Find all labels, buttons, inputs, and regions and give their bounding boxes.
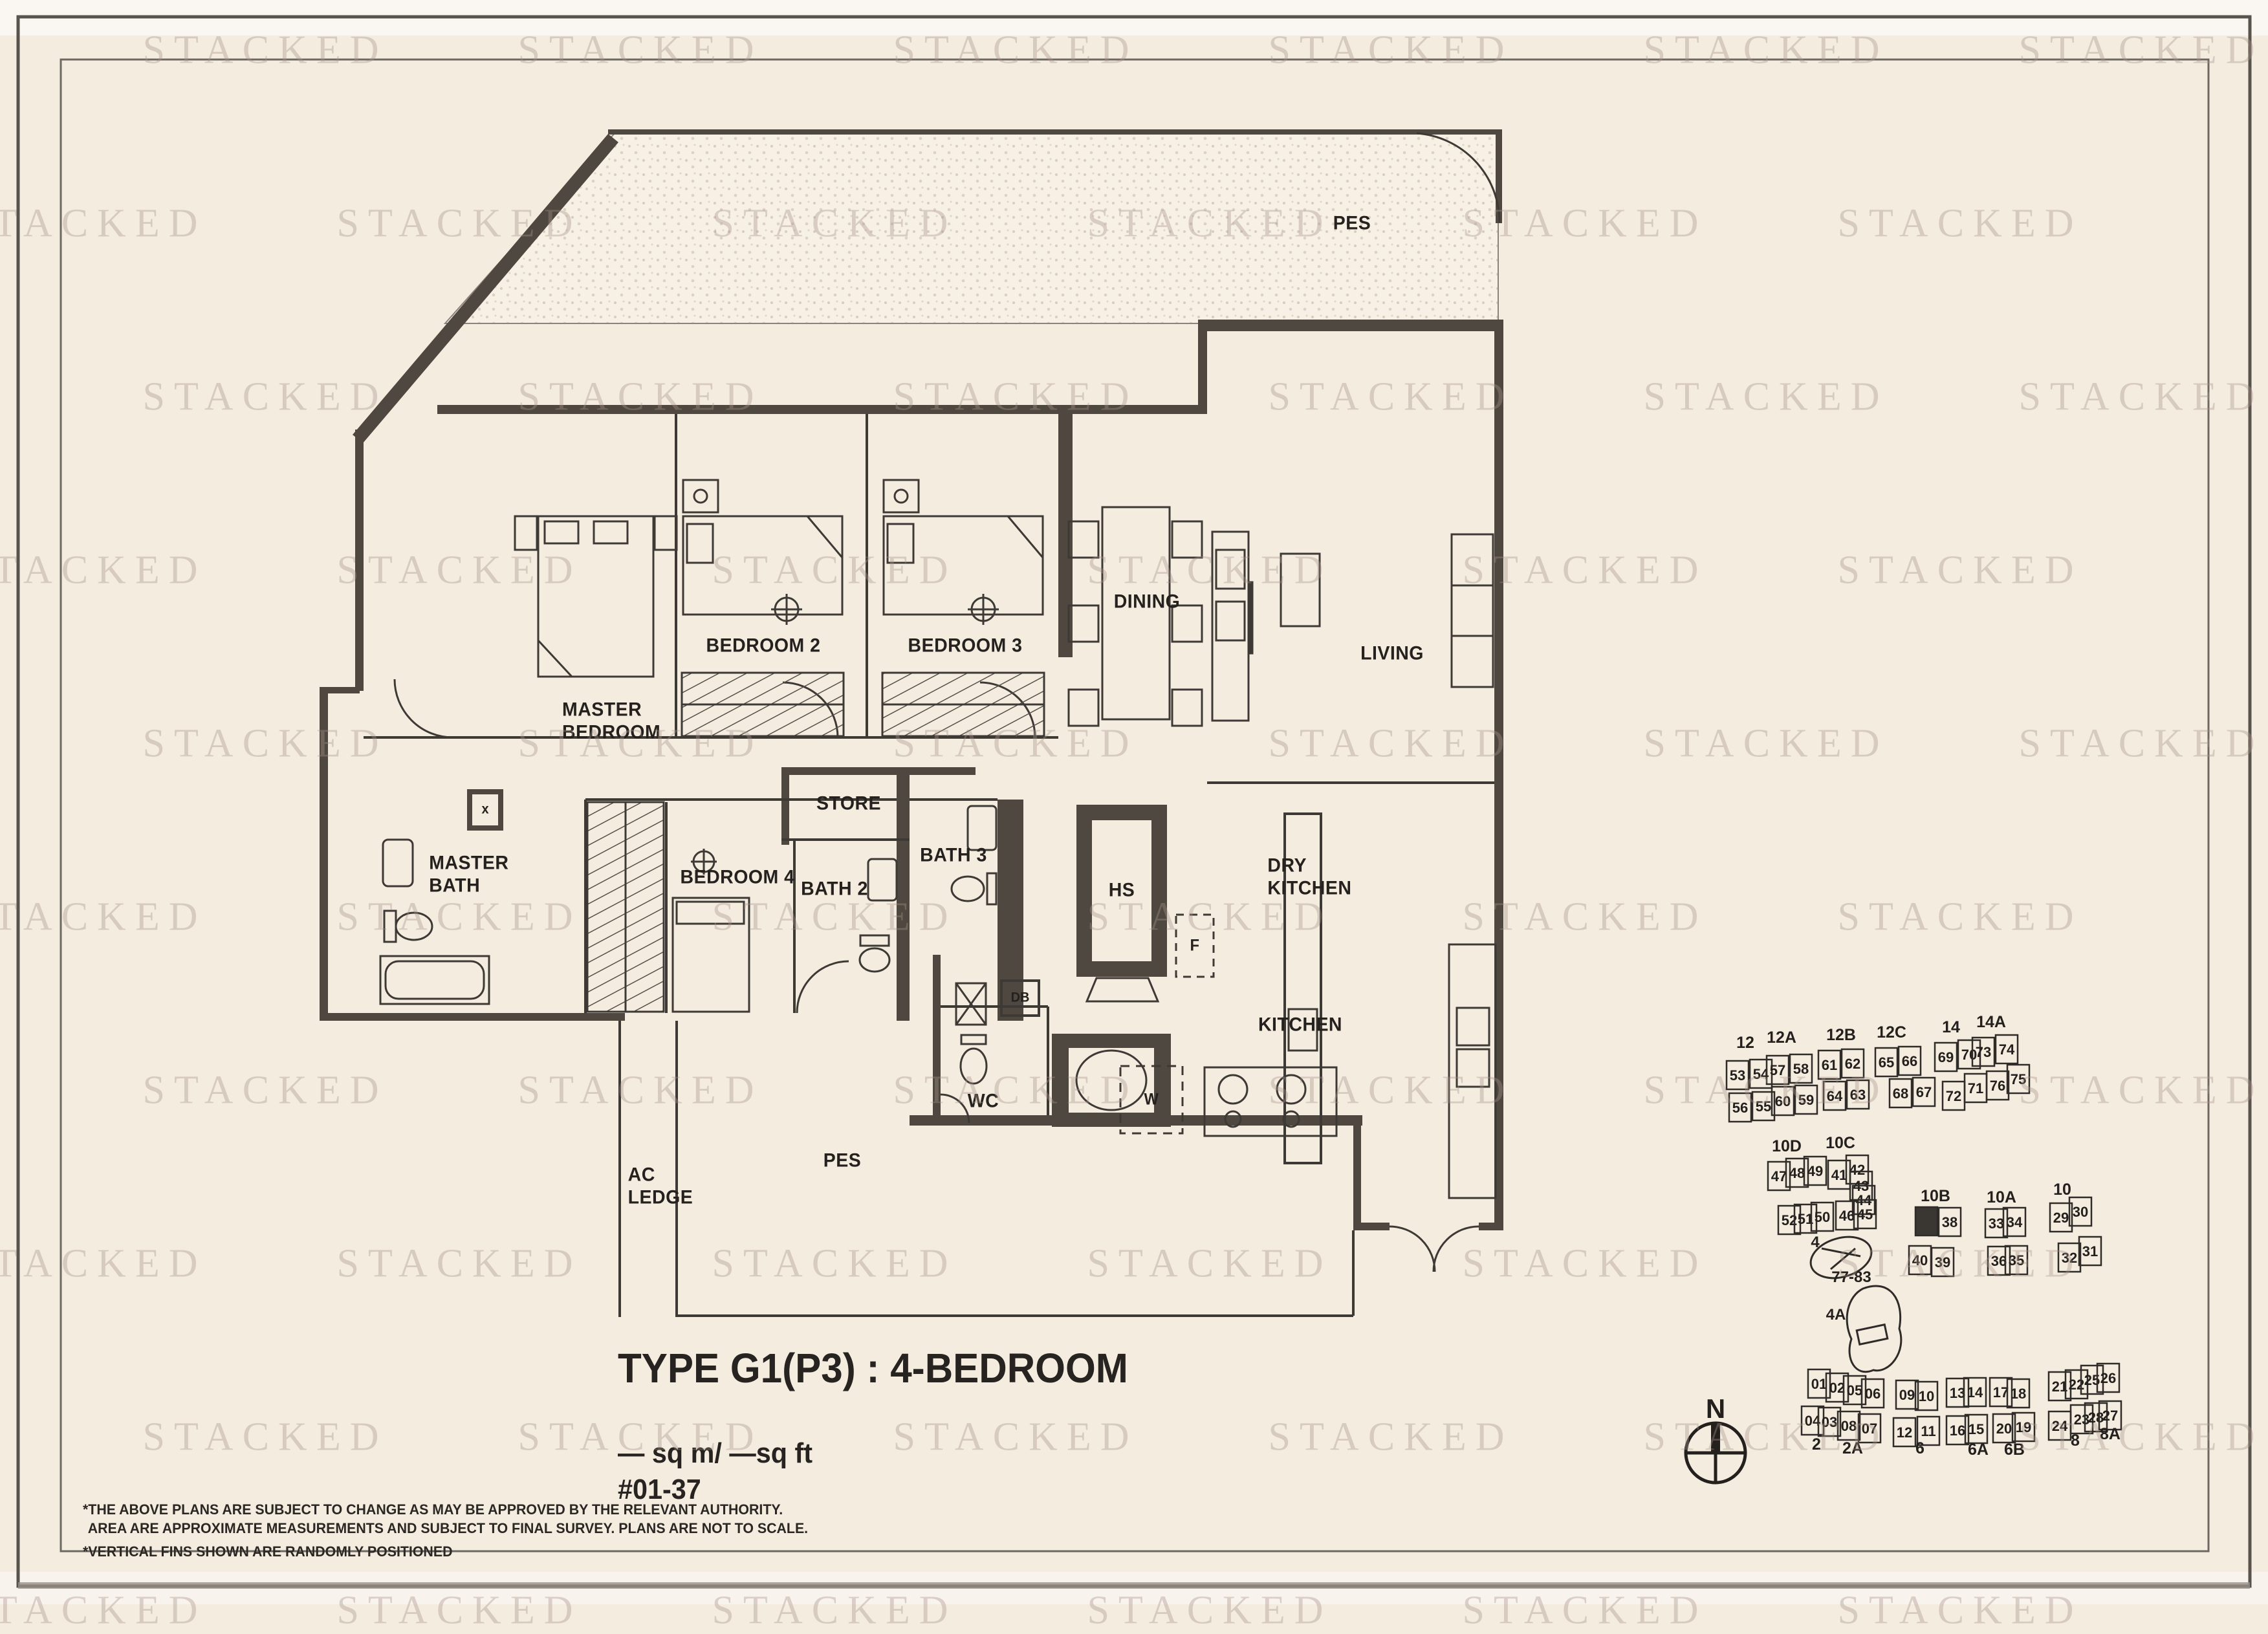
siteplan-unit-number: 71: [1968, 1080, 1983, 1096]
watermark-text: STACKED: [1838, 1241, 2083, 1287]
room-label-dry-kitchen: DRY KITCHEN: [1267, 855, 1351, 900]
siteplan-unit-number: 50: [1815, 1209, 1830, 1225]
siteplan-block-6A: 131416156A: [1946, 1378, 1989, 1459]
siteplan-block-label: 14: [1942, 1018, 1960, 1036]
floorplan-sheet: 53545655125758605912A6162646312B65666867…: [0, 0, 2268, 1604]
room-label-db: DB: [1011, 990, 1030, 1007]
watermark-text: STACKED: [893, 1415, 1139, 1461]
siteplan-landmark-label: 4: [1811, 1234, 1820, 1251]
siteplan-unit-number: 68: [1893, 1085, 1908, 1102]
watermark-text: STACKED: [0, 201, 206, 247]
room-label-master-bath: MASTER BATH: [429, 852, 508, 898]
room-label-kitchen: KITCHEN: [1258, 1013, 1342, 1036]
watermark-text: STACKED: [0, 1588, 206, 1634]
siteplan-unit-number: 47: [1771, 1168, 1787, 1184]
watermark-text: STACKED: [143, 28, 388, 74]
siteplan-block-label: 6A: [1968, 1441, 1989, 1459]
shaft-label: x: [481, 802, 488, 818]
siteplan-unit-number: 01: [1811, 1376, 1827, 1392]
siteplan-unit-number: 34: [2007, 1214, 2023, 1230]
siteplan-unit-number: 31: [2082, 1243, 2098, 1259]
siteplan-unit-number: 70: [1961, 1047, 1977, 1063]
watermark-text: STACKED: [1269, 1415, 1514, 1461]
watermark-text: STACKED: [1838, 1588, 2083, 1634]
siteplan-unit-number: 76: [1990, 1078, 2005, 1094]
siteplan-unit-number: 15: [1968, 1421, 1984, 1437]
room-label-dining: DINING: [1114, 590, 1181, 613]
room-label-living: LIVING: [1360, 642, 1424, 664]
siteplan-block-label: 10C: [1826, 1134, 1855, 1152]
watermark-text: STACKED: [2019, 1415, 2264, 1461]
watermark-text: STACKED: [518, 375, 763, 420]
siteplan-block-10D: 47484952515010D: [1768, 1137, 1833, 1234]
watermark-text: STACKED: [1269, 28, 1514, 74]
washer-label: W: [1144, 1090, 1159, 1109]
siteplan-unit-number: 46: [1839, 1208, 1855, 1224]
watermark-text: STACKED: [143, 1068, 388, 1114]
siteplan-unit-number: 16: [1950, 1422, 1965, 1439]
siteplan-block-label: 10D: [1772, 1137, 1802, 1155]
watermark-text: STACKED: [518, 721, 763, 767]
siteplan-unit-number: 67: [1916, 1084, 1932, 1100]
watermark-text: STACKED: [337, 895, 582, 941]
room-label-bath3: BATH 3: [920, 844, 987, 866]
disclaimer-text: *THE ABOVE PLANS ARE SUBJECT TO CHANGE A…: [83, 1501, 808, 1562]
watermark-text: STACKED: [1463, 1241, 1708, 1287]
watermark-text: STACKED: [1644, 721, 1889, 767]
watermark-text: STACKED: [1463, 201, 1708, 247]
watermark-text: STACKED: [893, 721, 1139, 767]
watermark-text: STACKED: [143, 721, 388, 767]
siteplan-block-label: 12C: [1877, 1023, 1906, 1041]
siteplan-block-6: 091012116: [1893, 1380, 1939, 1457]
watermark-text: STACKED: [1463, 548, 1708, 594]
watermark-text: STACKED: [712, 1241, 957, 1287]
siteplan-unit-number: 05: [1847, 1382, 1862, 1399]
room-label-bedroom2: BEDROOM 2: [706, 634, 821, 657]
watermark-text: STACKED: [893, 375, 1139, 420]
watermark-text: STACKED: [0, 895, 206, 941]
watermark-text: STACKED: [2019, 28, 2264, 74]
siteplan-unit-number: 20: [1996, 1421, 2012, 1437]
siteplan-block-label: 10B: [1921, 1187, 1950, 1205]
siteplan-unit-number: 48: [1789, 1165, 1805, 1181]
siteplan-unit-number: 17: [1993, 1384, 2009, 1400]
siteplan-unit-number: 10: [1919, 1388, 1934, 1404]
watermark-text: STACKED: [1838, 201, 2083, 247]
disclaimer-line1: *THE ABOVE PLANS ARE SUBJECT TO CHANGE A…: [83, 1501, 808, 1520]
watermark-text: STACKED: [518, 1068, 763, 1114]
siteplan-unit-number: 38: [1942, 1214, 1957, 1230]
watermark-text: STACKED: [1838, 548, 2083, 594]
siteplan-block-label: 14A: [1976, 1013, 2006, 1031]
siteplan-unit-number: 73: [1976, 1044, 1991, 1060]
siteplan-unit-number: 13: [1950, 1385, 1965, 1401]
siteplan-unit-number: 66: [1902, 1053, 1917, 1069]
watermark-text: STACKED: [893, 1068, 1139, 1114]
siteplan-unit-number: 74: [1999, 1041, 2015, 1058]
plan-title: TYPE G1(P3) : 4-BEDROOM: [618, 1344, 1128, 1392]
watermark-text: STACKED: [1644, 1415, 1889, 1461]
disclaimer-line3: *VERTICAL FINS SHOWN ARE RANDOMLY POSITI…: [83, 1543, 808, 1562]
siteplan-block-label: 12: [1736, 1034, 1754, 1052]
siteplan-unit-number: 49: [1807, 1163, 1823, 1179]
watermark-text: STACKED: [1644, 375, 1889, 420]
siteplan-block-14: 6970727114: [1935, 1018, 1987, 1110]
watermark-text: STACKED: [1087, 1241, 1333, 1287]
watermark-text: STACKED: [337, 1588, 582, 1634]
siteplan-unit-number: 11: [1921, 1423, 1935, 1439]
siteplan-block-label: 10: [2053, 1181, 2071, 1199]
watermark-text: STACKED: [1087, 548, 1333, 594]
watermark-text: STACKED: [337, 1241, 582, 1287]
siteplan-unit-number: 30: [2073, 1204, 2088, 1220]
watermark-text: STACKED: [143, 375, 388, 420]
watermark-text: STACKED: [712, 548, 957, 594]
siteplan-unit-number: 14: [1967, 1384, 1983, 1400]
watermark-text: STACKED: [2019, 1068, 2264, 1114]
watermark-text: STACKED: [1463, 1588, 1708, 1634]
watermark-text: STACKED: [337, 201, 582, 247]
siteplan-unit-number: 69: [1938, 1049, 1954, 1065]
siteplan-unit-number: 22: [2069, 1377, 2084, 1393]
siteplan-unit-number: 09: [1899, 1387, 1915, 1403]
watermark-text: STACKED: [1087, 895, 1333, 941]
siteplan-unit-number: 72: [1946, 1088, 1961, 1104]
watermark-text: STACKED: [1087, 1588, 1333, 1634]
siteplan-unit-number: 18: [2011, 1386, 2026, 1402]
watermark-text: STACKED: [518, 28, 763, 74]
siteplan-unit-highlighted: [1915, 1207, 1937, 1236]
watermark-text: STACKED: [0, 1241, 206, 1287]
siteplan-block-label: 12A: [1767, 1029, 1796, 1047]
siteplan-unit-number: 02: [1829, 1380, 1845, 1396]
siteplan-unit-number: 12: [1897, 1424, 1912, 1441]
watermark-text: STACKED: [1087, 201, 1333, 247]
room-label-store: STORE: [816, 792, 881, 814]
room-label-bedroom3: BEDROOM 3: [908, 634, 1023, 657]
siteplan-unit-number: 41: [1831, 1167, 1847, 1183]
siteplan-block-label: 12B: [1826, 1026, 1856, 1044]
siteplan-unit-number: 42: [1849, 1162, 1865, 1178]
siteplan-unit-number: 29: [2053, 1210, 2069, 1226]
watermark-text: STACKED: [0, 548, 206, 594]
watermark-text: STACKED: [337, 548, 582, 594]
watermark-text: STACKED: [1644, 28, 1889, 74]
siteplan-block-label: 10A: [1987, 1188, 2016, 1206]
watermark-text: STACKED: [1838, 895, 2083, 941]
watermark-text: STACKED: [2019, 375, 2264, 420]
watermark-text: STACKED: [1269, 1068, 1514, 1114]
siteplan-unit-number: 33: [1989, 1215, 2004, 1232]
watermark-text: STACKED: [2019, 721, 2264, 767]
watermark-text: STACKED: [712, 201, 957, 247]
watermark-text: STACKED: [143, 1415, 388, 1461]
room-label-pes-top: PES: [1333, 212, 1371, 234]
watermark-text: STACKED: [893, 28, 1139, 74]
siteplan-unit-number: 26: [2100, 1370, 2116, 1386]
room-label-bedroom4: BEDROOM 4: [681, 866, 795, 888]
disclaimer-line2: AREA ARE APPROXIMATE MEASUREMENTS AND SU…: [83, 1520, 808, 1538]
siteplan-unit-number: 06: [1865, 1386, 1881, 1402]
room-label-pes-bottom: PES: [823, 1149, 861, 1171]
watermark-text: STACKED: [1269, 721, 1514, 767]
siteplan-landmark-label: 4A: [1826, 1306, 1846, 1324]
watermark-text: STACKED: [1644, 1068, 1889, 1114]
watermark-text: STACKED: [1463, 895, 1708, 941]
siteplan-block-label: 6: [1915, 1439, 1925, 1457]
siteplan-unit-number: 45: [1857, 1206, 1873, 1223]
watermark-text: STACKED: [518, 1415, 763, 1461]
room-label-ac-ledge: AC LEDGE: [628, 1164, 693, 1210]
watermark-text: STACKED: [712, 895, 957, 941]
watermark-text: STACKED: [712, 1588, 957, 1634]
watermark-text: STACKED: [1269, 375, 1514, 420]
